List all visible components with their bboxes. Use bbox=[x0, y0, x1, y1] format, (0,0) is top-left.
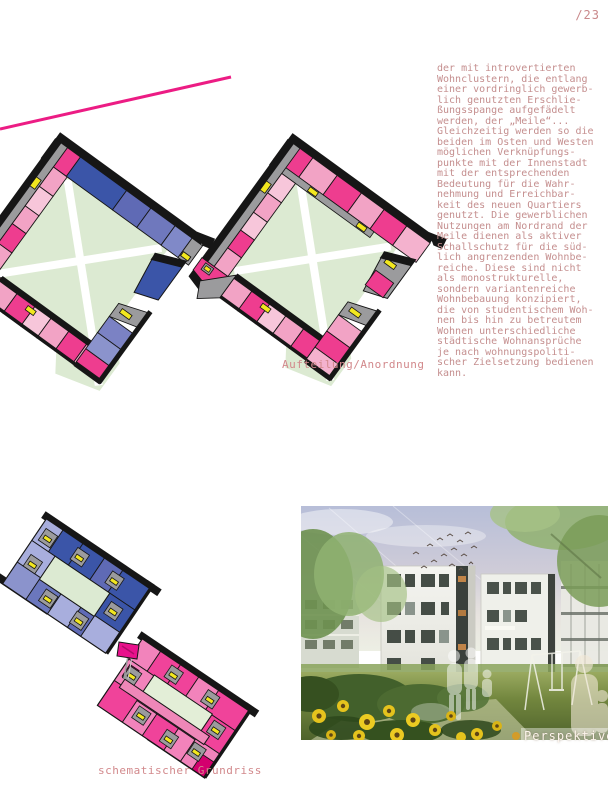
body-text: der mit introvertierten Wohnclustern, di… bbox=[437, 64, 608, 379]
caption-arrangement: Aufteilung/Anordnung bbox=[282, 358, 424, 371]
page-number: /23 bbox=[575, 8, 600, 22]
portfolio-page: { "page": { "number": "/23", "background… bbox=[0, 0, 608, 786]
arrangement-diagram-left bbox=[0, 128, 217, 404]
caption-floorplan: schematischer Grundriss bbox=[98, 764, 262, 777]
pink-accent-line bbox=[0, 77, 231, 129]
caption-perspective: Perspektive bbox=[521, 728, 608, 744]
perspective-render bbox=[301, 506, 608, 740]
cloud bbox=[366, 525, 486, 547]
